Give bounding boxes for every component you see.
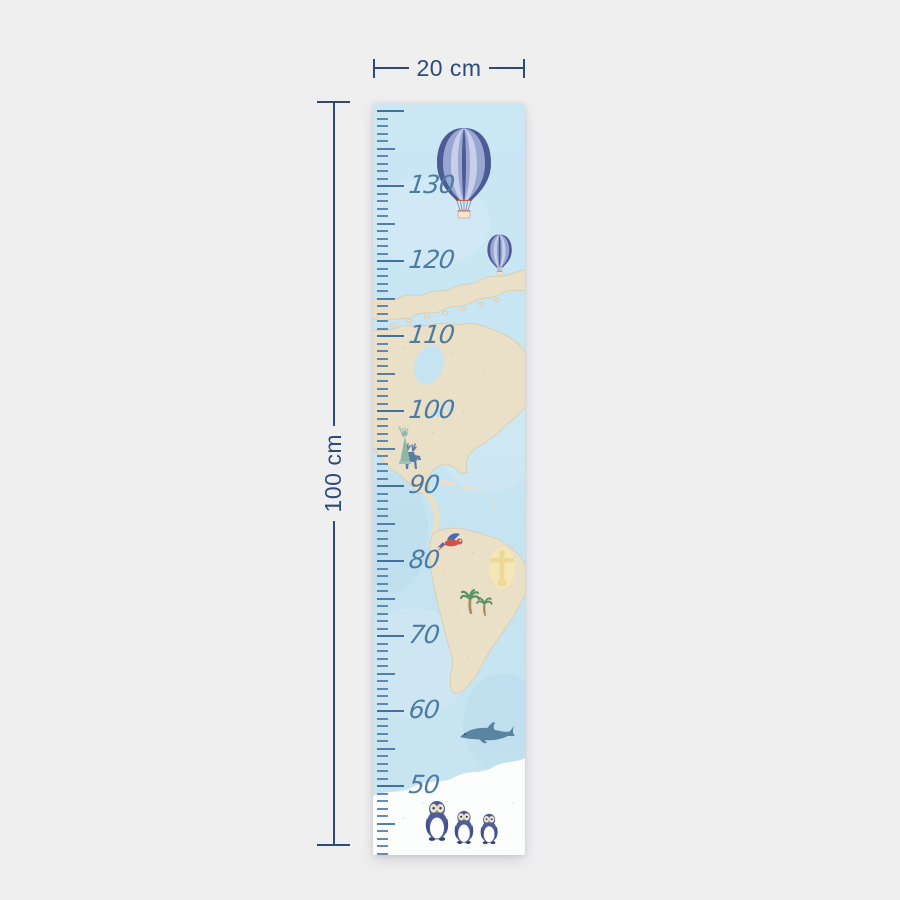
ruler-tick-96cm [377,440,388,442]
ruler-tick-97cm [377,433,388,435]
ruler-tick-111cm [377,328,388,330]
ruler-tick-68cm [377,650,388,652]
ruler-tick-116cm [377,290,388,292]
ruler-tick-93cm [377,463,388,465]
ruler-tick-58cm [377,725,388,727]
ruler-tick-98cm [377,425,388,427]
ruler-tick-128cm [377,200,388,202]
ruler-tick-101cm [377,403,388,405]
ruler-tick-87cm [377,508,388,510]
ruler-tick-124cm [377,230,388,232]
ruler-number-130: 130 [407,169,455,201]
ruler-tick-50cm [377,785,404,787]
ruler-tick-55cm [377,748,395,750]
ruler-tick-102cm [377,395,388,397]
ruler-tick-90cm [377,485,404,487]
ruler-tick-59cm [377,718,388,720]
ruler-tick-125cm [377,223,395,225]
ruler-tick-134cm [377,155,388,157]
ruler-scale: 1301201101009080706050 [373,103,525,855]
ruler-tick-70cm [377,635,404,637]
ruler-tick-127cm [377,208,388,210]
ruler-tick-100cm [377,410,404,412]
ruler-tick-78cm [377,575,388,577]
ruler-tick-45cm [377,823,395,825]
ruler-tick-62cm [377,695,388,697]
ruler-tick-47cm [377,808,388,810]
ruler-tick-82cm [377,545,388,547]
dimension-line [333,521,335,844]
ruler-tick-53cm [377,763,388,765]
ruler-tick-123cm [377,238,388,240]
ruler-tick-79cm [377,568,388,570]
ruler-tick-42cm [377,845,388,847]
ruler-tick-119cm [377,268,388,270]
ruler-tick-85cm [377,523,395,525]
ruler-tick-48cm [377,800,388,802]
height-dimension-label: 100 cm [320,426,347,520]
ruler-tick-57cm [377,733,388,735]
ruler-number-70: 70 [407,619,455,651]
ruler-tick-71cm [377,628,388,630]
ruler-number-110: 110 [407,319,455,351]
ruler-number-60: 60 [407,694,455,726]
ruler-tick-113cm [377,313,388,315]
ruler-tick-41cm [377,853,388,855]
ruler-tick-46cm [377,815,388,817]
ruler-tick-115cm [377,298,395,300]
ruler-tick-140cm [377,110,404,112]
ruler-tick-65cm [377,673,395,675]
ruler-tick-66cm [377,665,388,667]
ruler-tick-114cm [377,305,388,307]
ruler-tick-108cm [377,350,388,352]
ruler-tick-83cm [377,538,388,540]
ruler-tick-63cm [377,688,388,690]
ruler-tick-99cm [377,418,388,420]
ruler-tick-74cm [377,605,388,607]
ruler-tick-129cm [377,193,388,195]
ruler-tick-76cm [377,590,388,592]
ruler-tick-130cm [377,185,404,187]
ruler-tick-64cm [377,680,388,682]
ruler-tick-109cm [377,343,388,345]
width-dimension-label: 20 cm [409,55,488,82]
ruler-tick-84cm [377,530,388,532]
dimension-line [489,67,523,69]
ruler-tick-86cm [377,515,388,517]
ruler-tick-89cm [377,493,388,495]
ruler-tick-75cm [377,598,395,600]
product-mockup-stage: 20 cm 100 cm [0,0,900,900]
ruler-tick-60cm [377,710,404,712]
ruler-tick-117cm [377,283,388,285]
dimension-line [333,103,335,426]
ruler-tick-52cm [377,770,388,772]
ruler-tick-77cm [377,583,388,585]
ruler-number-90: 90 [407,469,455,501]
ruler-tick-92cm [377,470,388,472]
ruler-tick-56cm [377,740,388,742]
ruler-tick-95cm [377,448,395,450]
ruler-tick-107cm [377,358,388,360]
dimension-end-cap [317,844,350,846]
ruler-tick-118cm [377,275,388,277]
ruler-tick-122cm [377,245,388,247]
ruler-tick-44cm [377,830,388,832]
ruler-tick-133cm [377,163,388,165]
ruler-tick-81cm [377,553,388,555]
ruler-tick-73cm [377,613,388,615]
ruler-tick-106cm [377,365,388,367]
ruler-tick-88cm [377,500,388,502]
ruler-number-100: 100 [407,394,455,426]
ruler-tick-43cm [377,838,388,840]
ruler-tick-121cm [377,253,388,255]
ruler-tick-61cm [377,703,388,705]
ruler-tick-110cm [377,335,404,337]
ruler-tick-67cm [377,658,388,660]
width-dimension-annotation: 20 cm [373,56,525,80]
ruler-tick-139cm [377,118,388,120]
growth-chart-poster: 1301201101009080706050 [373,103,525,855]
ruler-tick-69cm [377,643,388,645]
ruler-tick-112cm [377,320,388,322]
ruler-tick-126cm [377,215,388,217]
ruler-tick-132cm [377,170,388,172]
ruler-tick-72cm [377,620,388,622]
ruler-number-80: 80 [407,544,455,576]
ruler-tick-80cm [377,560,404,562]
ruler-tick-54cm [377,755,388,757]
ruler-tick-131cm [377,178,388,180]
height-dimension-annotation: 100 cm [317,101,350,846]
ruler-tick-120cm [377,260,404,262]
ruler-number-50: 50 [407,769,455,801]
ruler-tick-91cm [377,478,388,480]
ruler-tick-51cm [377,778,388,780]
ruler-tick-94cm [377,455,388,457]
ruler-tick-137cm [377,133,388,135]
dimension-line [375,67,409,69]
ruler-tick-49cm [377,793,388,795]
ruler-tick-105cm [377,373,395,375]
ruler-tick-138cm [377,125,388,127]
ruler-tick-135cm [377,148,395,150]
ruler-number-120: 120 [407,244,455,276]
ruler-tick-136cm [377,140,388,142]
ruler-tick-104cm [377,380,388,382]
ruler-tick-103cm [377,388,388,390]
dimension-end-cap [523,59,525,78]
